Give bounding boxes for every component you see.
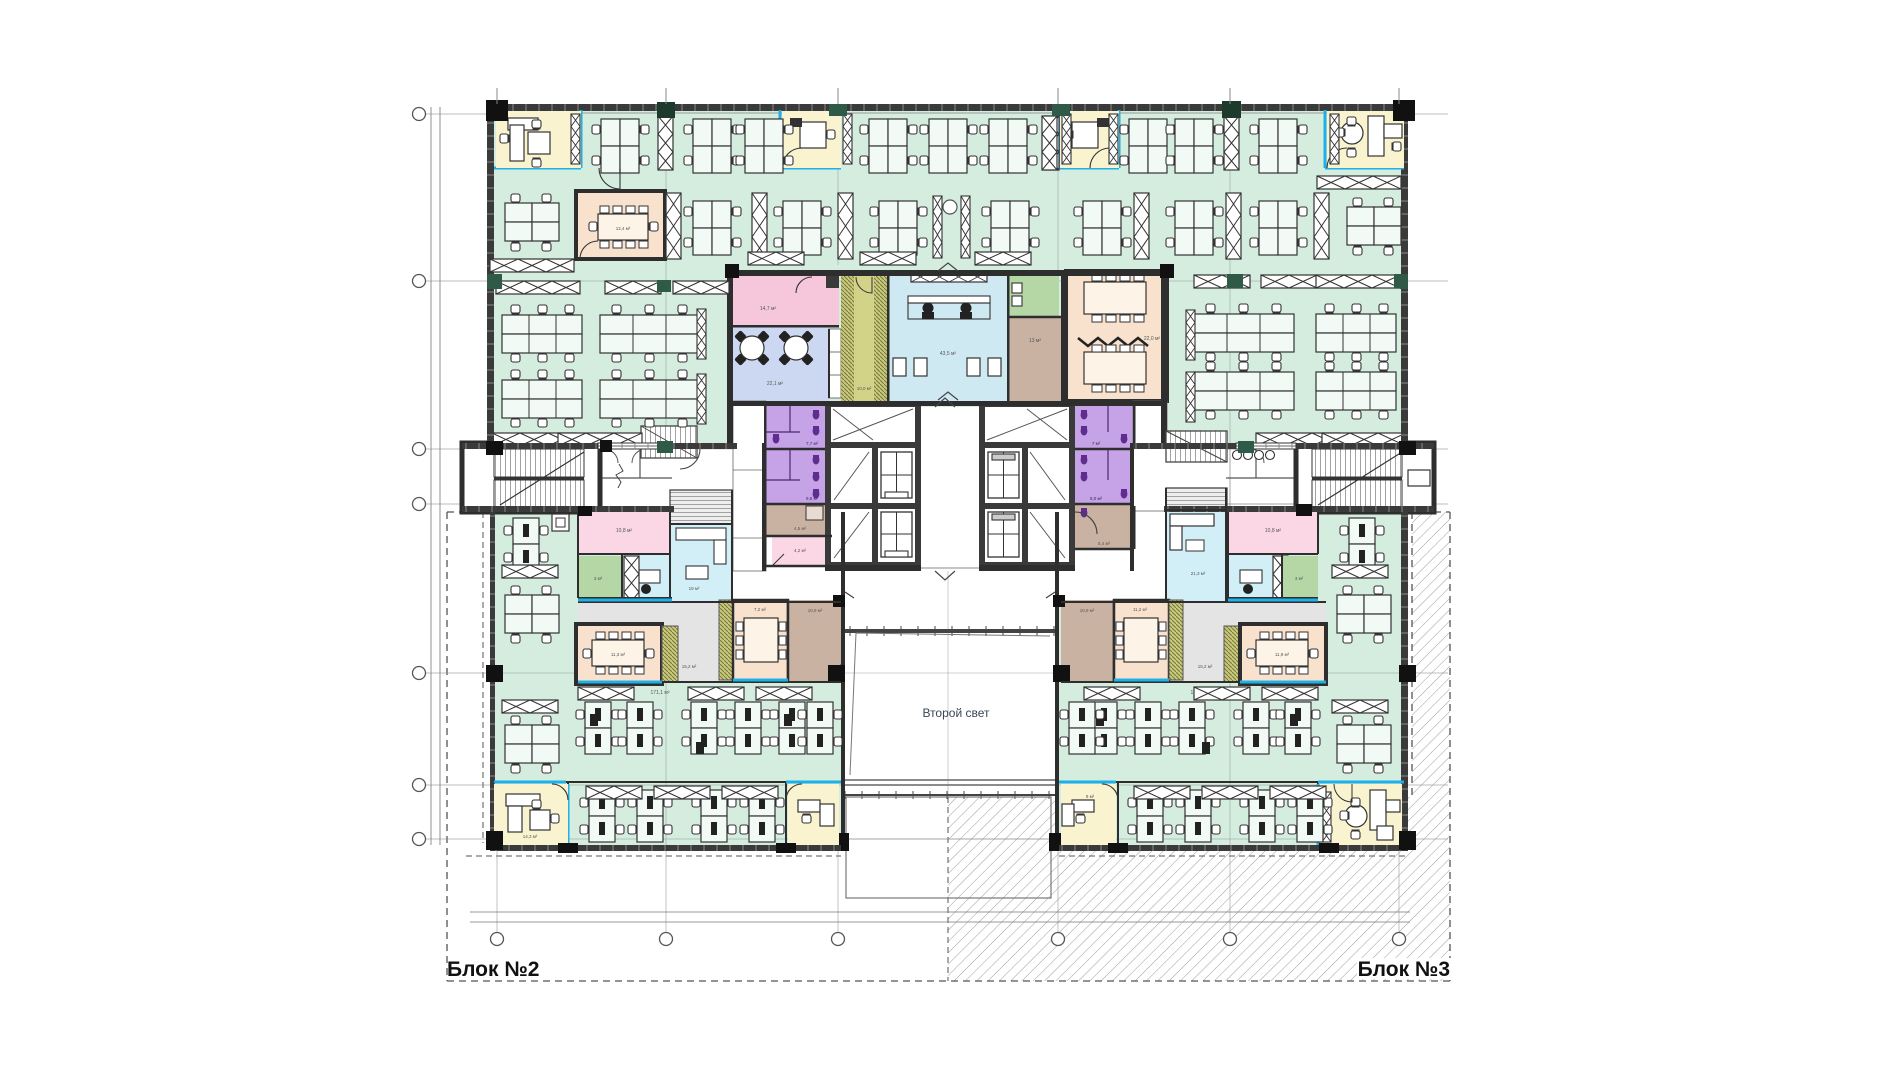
svg-text:9,8 м²: 9,8 м² (806, 496, 819, 501)
svg-text:Второй свет: Второй свет (922, 706, 990, 720)
svg-text:7,7 м²: 7,7 м² (806, 441, 819, 446)
svg-text:4,2 м²: 4,2 м² (794, 548, 807, 553)
svg-text:10,8 м²: 10,8 м² (1265, 528, 1282, 534)
svg-text:11,3 м²: 11,3 м² (611, 652, 626, 657)
svg-text:10,0 м²: 10,0 м² (857, 386, 872, 391)
svg-text:8,0 м²: 8,0 м² (1090, 496, 1103, 501)
svg-text:7 м²: 7 м² (1092, 441, 1101, 446)
svg-text:11,2 м²: 11,2 м² (1133, 607, 1148, 612)
svg-text:13 м²: 13 м² (1029, 338, 1041, 344)
svg-text:43,5 м²: 43,5 м² (940, 351, 957, 357)
svg-text:14,3 м²: 14,3 м² (523, 834, 538, 839)
svg-text:Блок №3: Блок №3 (1358, 958, 1450, 981)
svg-text:22,0 м²: 22,0 м² (1144, 336, 1161, 342)
svg-text:4,5 м²: 4,5 м² (794, 526, 807, 531)
svg-text:7,2 м²: 7,2 м² (754, 607, 767, 612)
svg-text:10,9 м²: 10,9 м² (808, 608, 823, 613)
svg-text:12,4 м²: 12,4 м² (616, 226, 631, 231)
svg-text:22,1 м²: 22,1 м² (767, 381, 784, 387)
svg-text:3 м²: 3 м² (1295, 576, 1304, 581)
svg-text:19 м²: 19 м² (689, 586, 700, 591)
svg-text:15,2 м²: 15,2 м² (1198, 664, 1213, 669)
svg-text:9 м²: 9 м² (1086, 794, 1095, 799)
svg-text:3 м²: 3 м² (594, 576, 603, 581)
svg-text:21,3 м²: 21,3 м² (1191, 571, 1206, 576)
svg-text:15,2 м²: 15,2 м² (682, 664, 697, 669)
svg-text:10,9 м²: 10,9 м² (1080, 608, 1095, 613)
svg-text:5,4 м²: 5,4 м² (1098, 541, 1111, 546)
svg-text:10,8 м²: 10,8 м² (616, 528, 633, 534)
svg-text:14,7 м²: 14,7 м² (760, 306, 777, 312)
svg-text:171,1 м²: 171,1 м² (650, 690, 669, 696)
svg-text:Блок №2: Блок №2 (447, 958, 539, 981)
svg-text:11,9 м²: 11,9 м² (1275, 652, 1290, 657)
